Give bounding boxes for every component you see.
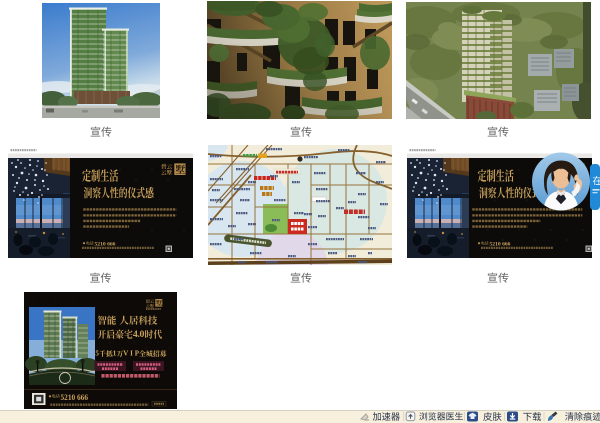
svg-text:4.0: 4.0 bbox=[133, 329, 145, 340]
svg-text:VIP: VIP bbox=[123, 350, 139, 358]
svg-text:5210 666: 5210 666 bbox=[95, 242, 116, 248]
svg-text:5: 5 bbox=[95, 350, 99, 358]
svg-text:5210 666: 5210 666 bbox=[61, 393, 89, 402]
svg-text:5210 666: 5210 666 bbox=[490, 242, 511, 248]
svg-text:1: 1 bbox=[113, 350, 117, 358]
